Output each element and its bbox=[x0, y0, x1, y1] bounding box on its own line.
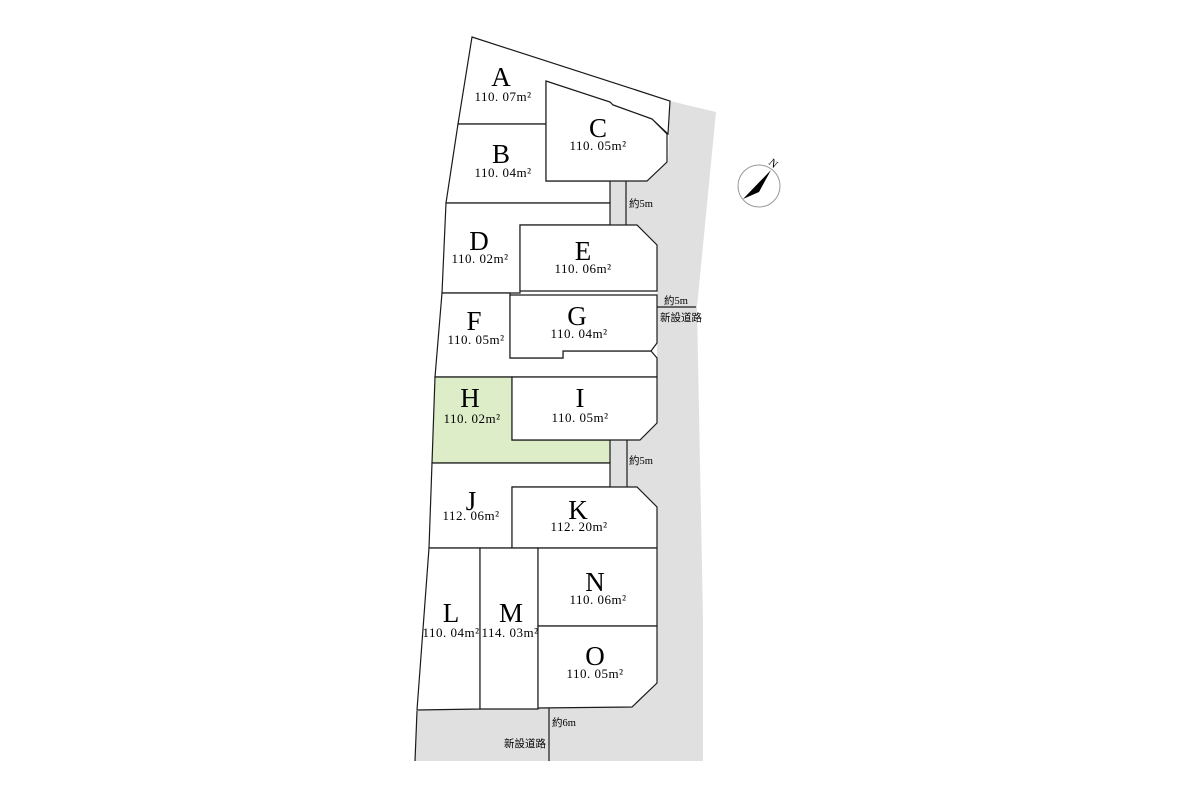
north-corridor-width-label: 約5m bbox=[629, 197, 653, 210]
lot-G-area: 110. 04m² bbox=[550, 326, 607, 341]
lot-A-label: A bbox=[491, 62, 511, 92]
east-road-name-label: 新設道路 bbox=[660, 311, 702, 324]
lot-O-area: 110. 05m² bbox=[566, 666, 623, 681]
lot-M-area: 114. 03m² bbox=[481, 625, 538, 640]
lot-I-shape[interactable] bbox=[512, 377, 657, 440]
lot-I-area: 110. 05m² bbox=[551, 410, 608, 425]
lot-F-area: 110. 05m² bbox=[447, 332, 504, 347]
lot-J-area: 112. 06m² bbox=[442, 508, 499, 523]
lot-I-label: I bbox=[576, 383, 585, 413]
lot-M-label: M bbox=[499, 598, 523, 628]
lot-C-area: 110. 05m² bbox=[569, 138, 626, 153]
lot-L-label: L bbox=[443, 598, 460, 628]
lot-H-label: H bbox=[460, 383, 480, 413]
lot-A-area: 110. 07m² bbox=[474, 89, 531, 104]
lot-L-area: 110. 04m² bbox=[422, 625, 479, 640]
east-road-width-label: 約5m bbox=[664, 294, 688, 307]
lot-E-area: 110. 06m² bbox=[554, 261, 611, 276]
south-corridor-width-label: 約5m bbox=[629, 454, 653, 467]
lot-B-area: 110. 04m² bbox=[474, 165, 531, 180]
south-road-width-label: 約6m bbox=[552, 716, 576, 729]
lot-map-svg: A110. 07m²B110. 04m²C110. 05m²D110. 02m²… bbox=[0, 0, 1200, 800]
south-road-name-label: 新設道路 bbox=[504, 737, 546, 750]
lot-map: A110. 07m²B110. 04m²C110. 05m²D110. 02m²… bbox=[0, 0, 1200, 800]
lot-N-area: 110. 06m² bbox=[569, 592, 626, 607]
lot-D-area: 110. 02m² bbox=[451, 251, 508, 266]
lot-H-area: 110. 02m² bbox=[443, 411, 500, 426]
lot-K-area: 112. 20m² bbox=[550, 519, 607, 534]
